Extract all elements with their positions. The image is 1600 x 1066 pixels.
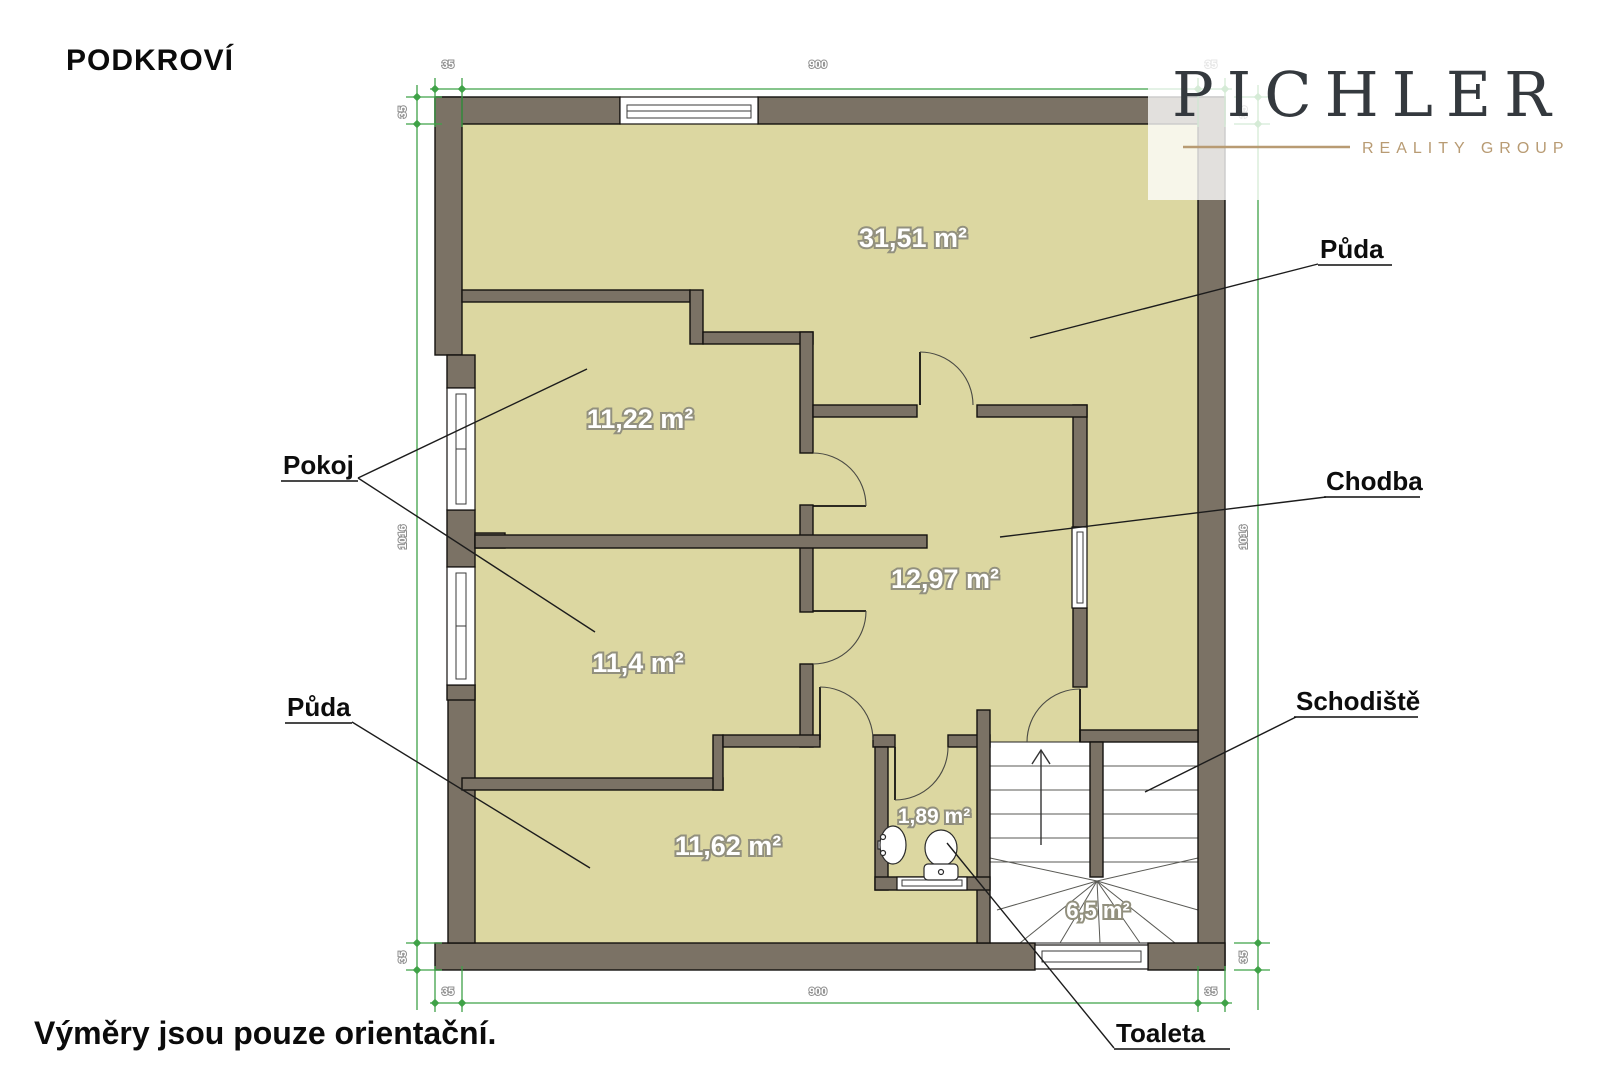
floorplan-drawing: 35 900 35 35 900 35 35 1016 35 35 1016 3… (0, 0, 1600, 1066)
wall-hall-right-lower (1073, 608, 1087, 687)
dim-bottom-35-left: 35 (442, 986, 454, 998)
outer-wall-top-left (435, 97, 620, 124)
window-hall-right (1072, 527, 1087, 608)
logo-tagline: REALITY GROUP (1362, 140, 1570, 157)
callout-puda-bottom: Půda (287, 692, 351, 722)
wall-step (690, 290, 703, 344)
area-staircase: 6,5 m² (1066, 898, 1130, 923)
outer-wall-bottom-left (435, 943, 1035, 970)
callout-chodba: Chodba (1326, 466, 1423, 496)
disclaimer-note: Výměry jsou pouze orientační. (34, 1015, 496, 1051)
area-bedroom2: 11,4 m² (592, 648, 684, 678)
wall-hall-top (977, 405, 1087, 417)
wall-hall-bottom (873, 735, 895, 747)
outer-wall-right (1198, 97, 1225, 970)
wall-step (703, 332, 813, 344)
page-title: PODKROVÍ (66, 43, 234, 77)
callout-toaleta: Toaleta (1116, 1018, 1206, 1048)
dim-bottom-35-right: 35 (1205, 986, 1217, 998)
wall-pier (447, 685, 475, 700)
toilet-icon (924, 830, 958, 880)
area-hallway: 12,97 m² (891, 564, 999, 594)
callout-puda-top: Půda (1320, 234, 1384, 264)
wall-attic-room1 (462, 290, 690, 302)
logo-wordmark: PICHLER (1172, 58, 1564, 131)
area-attic-top: 31,51 m² (859, 223, 967, 253)
outer-wall-left-upper (435, 97, 462, 355)
window-stairs-bottom (1035, 945, 1148, 969)
wall-hall-top (813, 405, 917, 417)
callout-schodiste: Schodiště (1296, 686, 1420, 716)
wall-room2-attic (462, 778, 723, 790)
dim-left-35-top: 35 (397, 106, 409, 118)
wall-toilet-right (977, 710, 990, 943)
floorplan-page: 35 900 35 35 900 35 35 1016 35 35 1016 3… (0, 0, 1600, 1066)
callout-pokoj: Pokoj (283, 450, 354, 480)
wall-pier (447, 355, 475, 388)
wall-step (713, 735, 723, 790)
dim-right-35-bottom: 35 (1238, 951, 1250, 963)
wall-toilet-left (875, 747, 888, 890)
wall-hall-bottom (723, 735, 820, 747)
dim-bottom-900: 900 (809, 986, 827, 998)
area-attic-bottom: 11,62 m² (675, 831, 782, 861)
wall-hall-right-upper (1073, 405, 1087, 527)
dim-top-900: 900 (809, 59, 827, 71)
dim-top-35-left: 35 (442, 59, 454, 71)
wall-stairs-top (1080, 730, 1198, 742)
window-top (620, 97, 758, 124)
wall-spine-upper (800, 332, 813, 453)
outer-wall-bottom-right (1148, 943, 1225, 970)
dim-left-1016: 1016 (397, 525, 409, 549)
outer-wall-left-lower (448, 685, 475, 943)
area-toilet: 1,89 m² (898, 805, 970, 828)
area-bedroom1: 11,22 m² (587, 404, 694, 434)
dim-left-35-bottom: 35 (397, 951, 409, 963)
wall-spine-middle (800, 505, 813, 612)
window-left-lower (447, 567, 475, 685)
wall-stairs-divider (1090, 742, 1103, 877)
dim-right-1016: 1016 (1238, 525, 1250, 549)
window-left-upper (447, 388, 475, 510)
wall-room1-room2 (475, 535, 927, 548)
